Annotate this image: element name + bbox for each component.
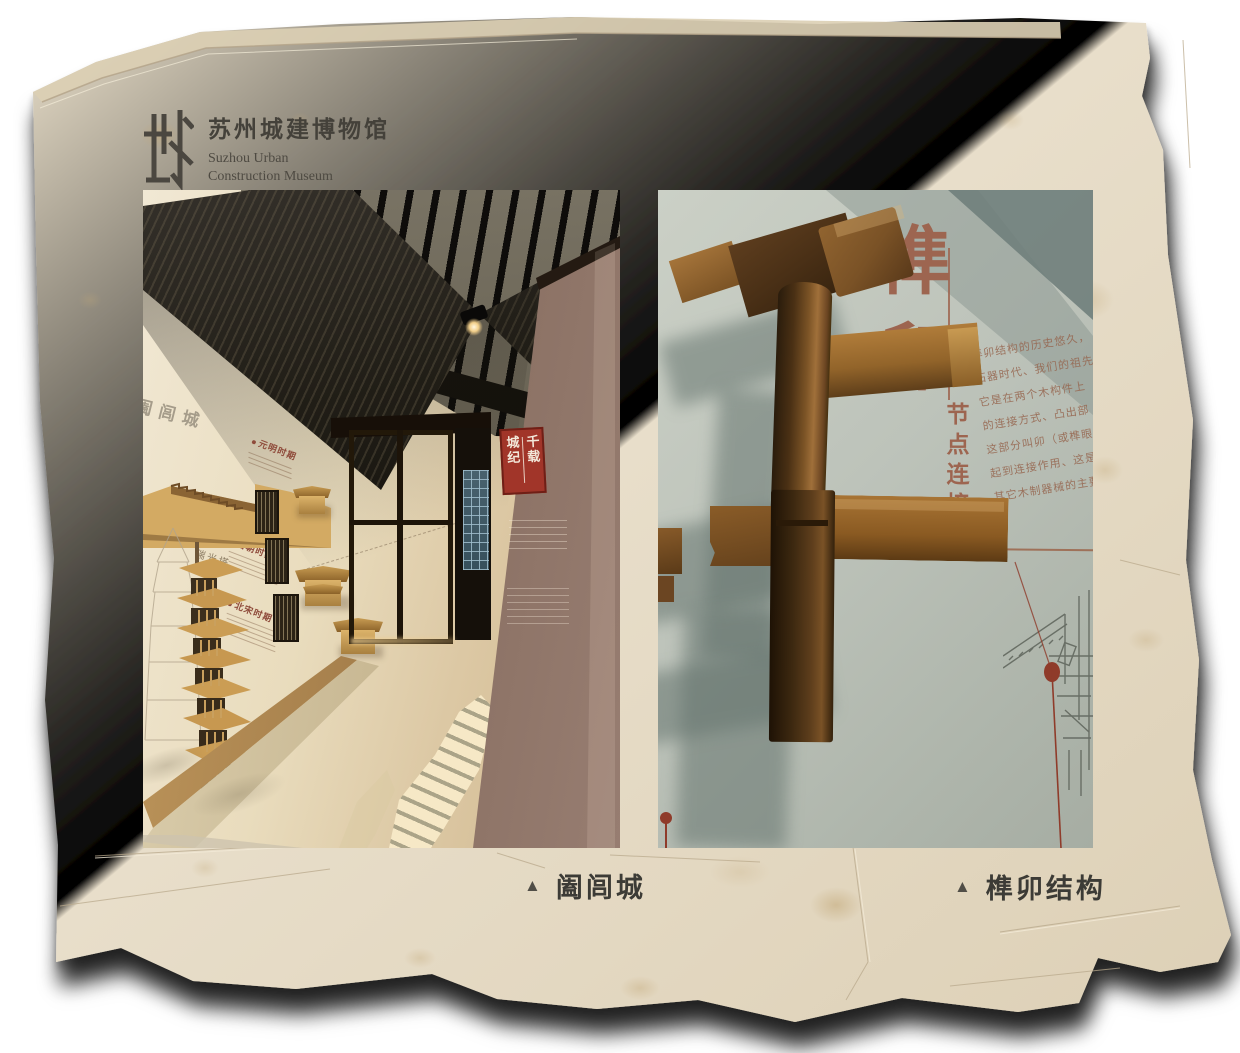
- sign-col-left: 城纪: [505, 435, 521, 493]
- logo-title-zh: 苏州城建博物馆: [208, 110, 390, 144]
- photo-mortise-tenon: 榫卯 节点连接 榫卯结构的历史悠久， 石器时代、我们的祖先 它是在两个木构件上 …: [658, 190, 1093, 848]
- joint-notch-line: [776, 520, 828, 526]
- triangle-marker-icon: ▲: [524, 877, 541, 894]
- sign-col-right: 千载: [525, 434, 541, 492]
- logo-mark-icon: [140, 104, 194, 190]
- caption-left-text: 阖闾城: [556, 866, 646, 905]
- panel-paragraph: [507, 588, 569, 630]
- photo-helu-city: 阖闾城 元明时期 唐朝时期 北宋时期 瑞光塔: [143, 190, 620, 848]
- logo-en-line1: Suzhou Urban: [208, 150, 390, 168]
- logo-title-en: Suzhou Urban Construction Museum: [208, 150, 390, 186]
- partial-joint-piece: [658, 576, 674, 602]
- period-text-block: [247, 460, 293, 475]
- screen-floor-glow: [351, 638, 455, 644]
- caption-right-text: 榫卯结构: [986, 867, 1106, 906]
- partial-joint-piece: [658, 528, 682, 574]
- red-exhibition-sign: 千载 城纪: [499, 427, 546, 495]
- caption-right: ▲ 榫卯结构: [954, 867, 1106, 906]
- spotlight-glow: [465, 318, 483, 336]
- red-pin-stem: [665, 822, 667, 848]
- logo-en-line2: Construction Museum: [208, 168, 390, 186]
- page: 苏州城建博物馆 Suzhou Urban Construction Museum…: [0, 0, 1240, 1053]
- triangle-marker-icon: ▲: [954, 878, 971, 895]
- dougong-line-drawing: [1003, 560, 1093, 848]
- tenon-tip: [948, 327, 983, 387]
- wall-model: [295, 566, 351, 610]
- vertical-post: [769, 490, 835, 743]
- panel-paragraph: [509, 520, 567, 555]
- museum-logo: 苏州城建博物馆 Suzhou Urban Construction Museum: [140, 104, 390, 190]
- screen-rail: [349, 520, 453, 525]
- grille-window: [255, 490, 279, 534]
- caption-left: ▲ 阖闾城: [524, 866, 646, 905]
- screen-mullion: [397, 430, 403, 644]
- wall-model: [293, 486, 331, 518]
- lattice-window-blue: [463, 470, 489, 570]
- grille-window: [265, 538, 289, 584]
